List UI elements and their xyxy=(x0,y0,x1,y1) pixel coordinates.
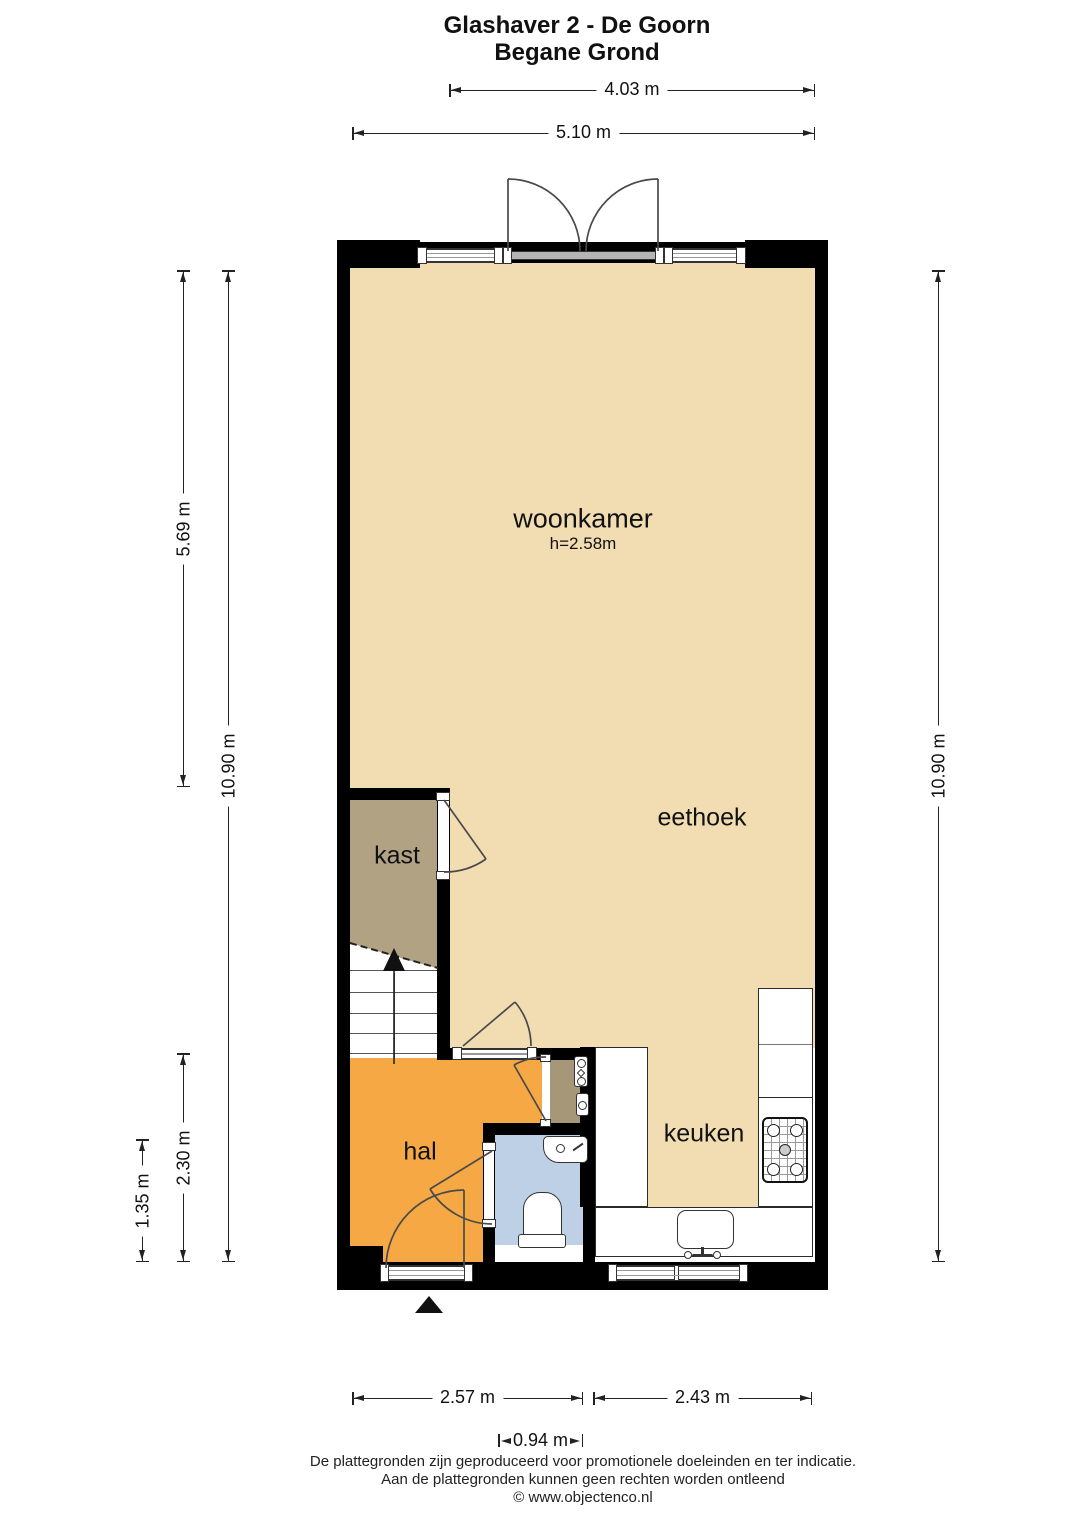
dimension-bottom-right: 2.43 m xyxy=(593,1391,812,1406)
dimension-top-outer: 5.10 m xyxy=(352,126,815,141)
french-door-right-arc xyxy=(586,179,658,251)
kast-door-arc xyxy=(444,859,486,872)
french-door-left-arc xyxy=(508,179,580,251)
label-keuken: keuken xyxy=(664,1120,745,1149)
meterkast-door-arc xyxy=(514,1057,546,1065)
toilet-door-leaf xyxy=(430,1151,492,1189)
dimension-bottom-toilet: 0.94 m xyxy=(498,1433,583,1448)
label-eethoek: eethoek xyxy=(658,804,747,833)
meterkast-door-leaf xyxy=(514,1065,546,1121)
hal-door-leaf xyxy=(463,1002,515,1046)
disclaimer-line2: Aan de plattegronden kunnen geen rechten… xyxy=(310,1471,856,1489)
dimension-label: 10.90 m xyxy=(218,725,239,806)
dimension-left-toilet: 1.35 m xyxy=(135,1139,150,1262)
doors-and-arcs-overlay xyxy=(0,0,1080,1527)
stairs-up-arrow-icon xyxy=(383,948,405,971)
kast-door-leaf xyxy=(444,800,486,859)
disclaimer-line3: © www.objectenco.nl xyxy=(310,1489,856,1507)
dimension-top-inner: 4.03 m xyxy=(449,83,815,98)
dimension-label: 5.10 m xyxy=(548,122,619,143)
dimension-label: 0.94 m xyxy=(513,1433,568,1448)
dimension-bottom-left: 2.57 m xyxy=(352,1391,583,1406)
dimension-label: 4.03 m xyxy=(596,79,667,100)
entrance-arrow-icon xyxy=(415,1296,443,1313)
dimension-label: 10.90 m xyxy=(928,725,949,806)
dimension-label: 2.43 m xyxy=(667,1387,738,1408)
dimension-label: 1.35 m xyxy=(132,1165,153,1236)
dimension-left-upper: 5.69 m xyxy=(176,270,191,787)
dimension-right-total: 10.90 m xyxy=(931,270,946,1262)
floorplan-page: Glashaver 2 - De Goorn Begane Grond xyxy=(0,0,1080,1527)
label-ceiling-height: h=2.58m xyxy=(550,534,617,554)
dimension-left-total: 10.90 m xyxy=(221,270,236,1262)
dimension-left-hal: 2.30 m xyxy=(176,1053,191,1262)
dimension-label: 5.69 m xyxy=(173,493,194,564)
label-hal: hal xyxy=(403,1138,436,1167)
disclaimer-line1: De plattegronden zijn geproduceerd voor … xyxy=(310,1453,856,1471)
hal-door-arc xyxy=(515,1002,531,1046)
dimension-label: 2.30 m xyxy=(173,1122,194,1193)
disclaimer: De plattegronden zijn geproduceerd voor … xyxy=(310,1453,856,1507)
label-kast: kast xyxy=(374,842,420,871)
dimension-label: 2.57 m xyxy=(432,1387,503,1408)
front-door-arc xyxy=(386,1190,464,1268)
label-woonkamer: woonkamer xyxy=(513,504,653,535)
